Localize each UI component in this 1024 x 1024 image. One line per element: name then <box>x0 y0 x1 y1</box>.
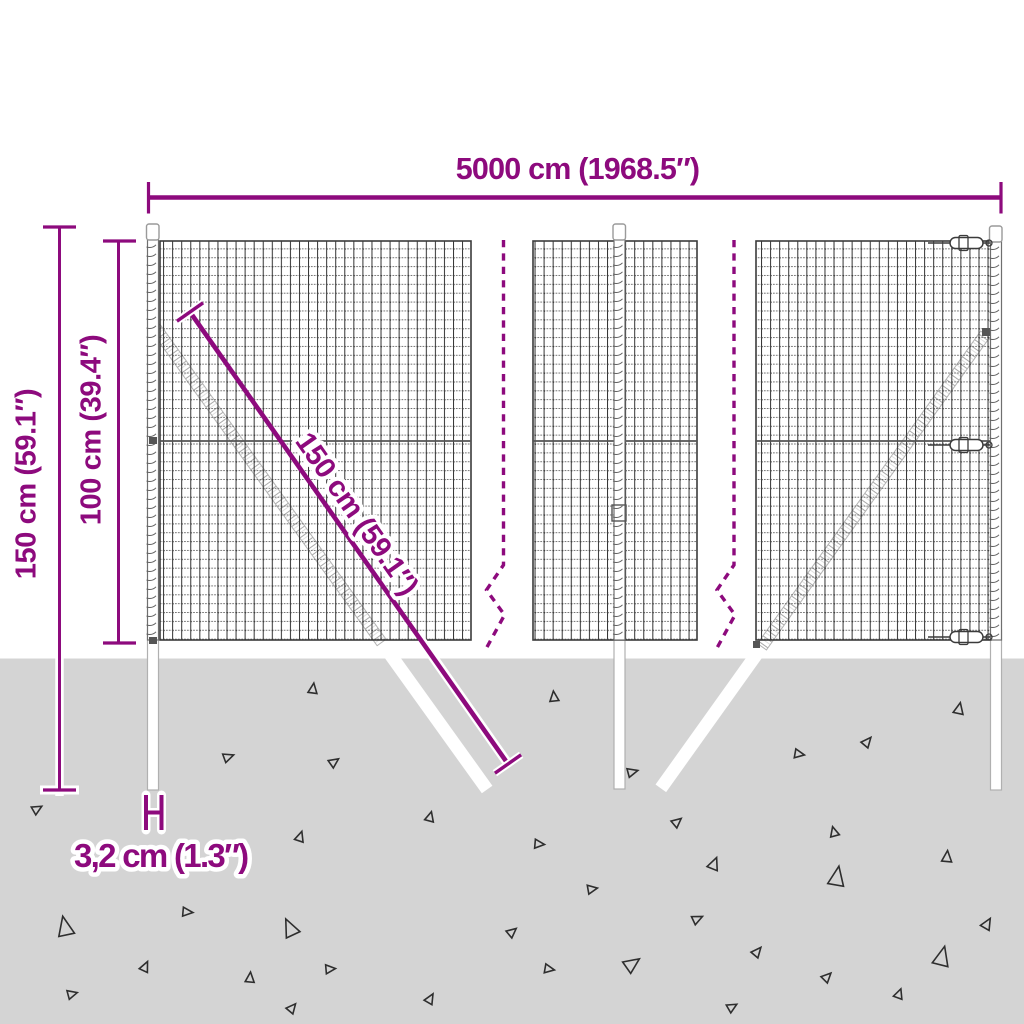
svg-text:5000 cm (1968.5″): 5000 cm (1968.5″) <box>456 152 700 186</box>
svg-text:150 cm (59.1″): 150 cm (59.1″) <box>11 389 43 579</box>
svg-text:100 cm (39.4″): 100 cm (39.4″) <box>76 335 108 525</box>
svg-text:3,2 cm (1.3″): 3,2 cm (1.3″) <box>74 837 248 874</box>
